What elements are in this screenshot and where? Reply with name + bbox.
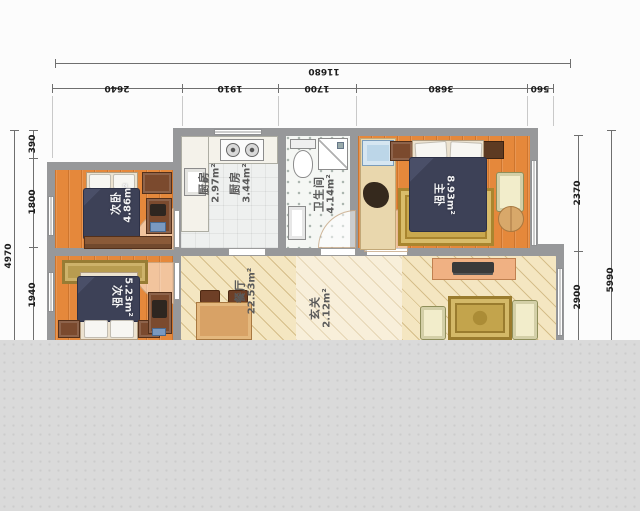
dim-tick xyxy=(574,135,583,136)
desk-item xyxy=(150,204,166,216)
dim-tick xyxy=(356,84,357,93)
dim-line-right-overall xyxy=(611,130,612,340)
dim-tick xyxy=(55,59,56,68)
window-living xyxy=(557,268,563,336)
toilet-bowl xyxy=(293,150,313,178)
pillow xyxy=(84,320,108,338)
dim-left-seg-1: 390 xyxy=(28,135,38,154)
window-bedroom-lower xyxy=(48,272,54,312)
bathroom-sink xyxy=(288,206,306,240)
wall-kitchen-bath xyxy=(278,136,286,248)
extension-line xyxy=(278,96,279,126)
dim-top-seg-2: 1910 xyxy=(217,83,242,93)
bed-duvet xyxy=(83,188,140,240)
dim-tick xyxy=(52,84,53,93)
dim-top-seg-4: 3680 xyxy=(428,83,453,93)
extension-line xyxy=(527,96,528,126)
dim-right-seg-1: 2370 xyxy=(573,180,583,205)
dining-table xyxy=(196,302,252,340)
faucet-icon xyxy=(203,178,208,183)
desk-item xyxy=(152,300,167,318)
pillow xyxy=(113,174,135,189)
armchair xyxy=(420,306,446,340)
window-master xyxy=(531,160,537,246)
entry-floor xyxy=(296,256,402,340)
extension-line xyxy=(182,96,183,126)
dim-line-left-overall xyxy=(14,130,15,340)
door-kitchen xyxy=(228,248,266,256)
chair xyxy=(152,328,166,336)
dim-top-seg-5: 560 xyxy=(531,83,550,93)
dim-right-overall: 5990 xyxy=(606,267,616,292)
dim-right-seg-2: 2900 xyxy=(573,284,583,309)
clothes-pile xyxy=(363,182,389,208)
chair xyxy=(150,222,166,232)
rug xyxy=(448,296,512,340)
dim-top-overall: 11680 xyxy=(308,66,339,76)
dim-tick xyxy=(570,59,571,68)
background-band xyxy=(0,340,640,511)
dresser xyxy=(84,236,172,249)
dim-top-seg-3: 1700 xyxy=(304,83,329,93)
pillow xyxy=(110,320,134,338)
dim-line-top-overall xyxy=(55,63,570,64)
dim-tick xyxy=(29,158,38,159)
wall-mid-1 xyxy=(181,248,228,256)
window-bedroom-upper xyxy=(48,196,54,236)
wall-mid-2 xyxy=(266,248,320,256)
dim-tick xyxy=(29,247,38,248)
dim-tick xyxy=(278,84,279,93)
bed-duvet xyxy=(409,157,487,232)
stove-burner xyxy=(245,143,259,157)
extension-line xyxy=(553,96,554,126)
shower-drain xyxy=(337,142,344,149)
dim-left-overall: 4970 xyxy=(4,243,14,268)
dim-tick xyxy=(553,84,554,93)
door-bathroom xyxy=(320,248,356,256)
extension-line xyxy=(52,96,53,158)
wall-mid-4 xyxy=(408,248,530,256)
round-table xyxy=(498,206,524,232)
stove-burner xyxy=(226,143,240,157)
bed-duvet xyxy=(77,276,140,322)
extension-line xyxy=(356,96,357,126)
dim-top-seg-1: 2640 xyxy=(104,83,129,93)
nightstand xyxy=(58,320,80,338)
dim-tick xyxy=(29,130,38,131)
sofa xyxy=(512,300,538,340)
dim-tick xyxy=(527,84,528,93)
dim-line-left-segments xyxy=(33,130,34,340)
tv xyxy=(452,262,494,273)
window-kitchen xyxy=(214,129,262,135)
floor-plan-canvas: 厨房 2.97m² 厨房 3.44m² 卫生间 4.14m² 主卧 8.93m²… xyxy=(0,0,640,511)
dim-left-seg-3: 1940 xyxy=(28,282,38,307)
toilet-tank xyxy=(290,139,316,149)
dim-tick xyxy=(182,84,183,93)
dim-tick xyxy=(10,130,19,131)
dim-left-seg-2: 1800 xyxy=(28,189,38,214)
wall-top-bedrooms xyxy=(47,162,181,170)
door-bedroom-upper xyxy=(174,210,180,248)
pillow xyxy=(89,174,111,189)
wardrobe xyxy=(142,172,172,194)
dim-tick xyxy=(607,130,616,131)
dim-tick xyxy=(574,251,583,252)
door-bedroom-lower xyxy=(174,262,180,300)
